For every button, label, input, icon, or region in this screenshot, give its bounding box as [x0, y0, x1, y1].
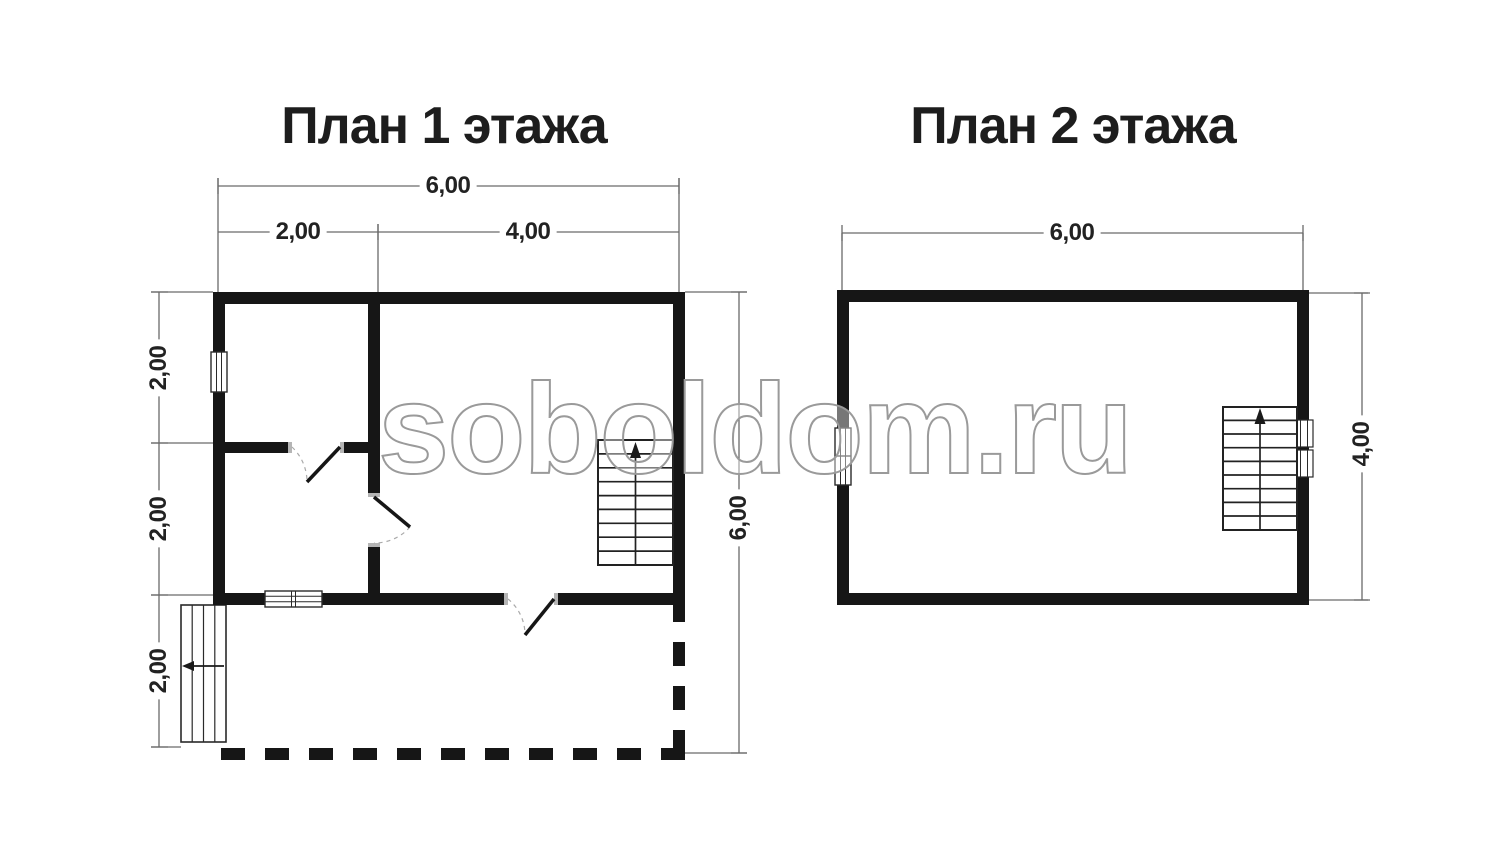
- plan1-door-1-leaf: [307, 447, 340, 482]
- plan1-entrance-door-swing-arc: [508, 599, 525, 635]
- plan1-title: План 1 этажа: [281, 96, 606, 156]
- plan1-window-left-wall: [211, 352, 227, 392]
- plan1-dim-top-total: 6,00: [420, 173, 477, 199]
- plan2-dim-top-total: 6,00: [1044, 220, 1101, 246]
- plan1-entrance-door-leaf: [525, 599, 554, 635]
- plan1-staircase: [598, 440, 673, 565]
- plan1-dim-left-2: 2,00: [146, 491, 172, 548]
- plan1-interior-walls: [225, 304, 380, 593]
- plan1-dim-right-total: 6,00: [726, 490, 752, 547]
- plan1-window-bottom-wall: [265, 591, 322, 607]
- plan1-door-jambs: [288, 442, 558, 605]
- plan1-dim-left-1: 2,00: [146, 340, 172, 397]
- floor-plans-page: План 1 этажа План 2 этажа 6,00 2,00 4,00…: [0, 0, 1510, 850]
- plan2-dim-right-total: 4,00: [1349, 416, 1375, 473]
- plan1-porch-steps: [181, 605, 226, 742]
- plan1-dim-top-right: 4,00: [500, 219, 557, 245]
- plan1-door-2-leaf: [374, 497, 410, 527]
- plan2-title: План 2 этажа: [910, 96, 1235, 156]
- plan1-terrace-dashed-outline: [213, 610, 685, 754]
- plan2-window-left-wall: [835, 428, 851, 485]
- plan1-door-2-swing-arc: [374, 527, 410, 543]
- floor-plan-drawing: [0, 0, 1510, 850]
- plan1-dim-top-left: 2,00: [270, 219, 327, 245]
- plan2-staircase: [1223, 407, 1297, 530]
- plan1-door-1-swing-arc: [292, 447, 307, 482]
- plan1-dim-left-3: 2,00: [146, 643, 172, 700]
